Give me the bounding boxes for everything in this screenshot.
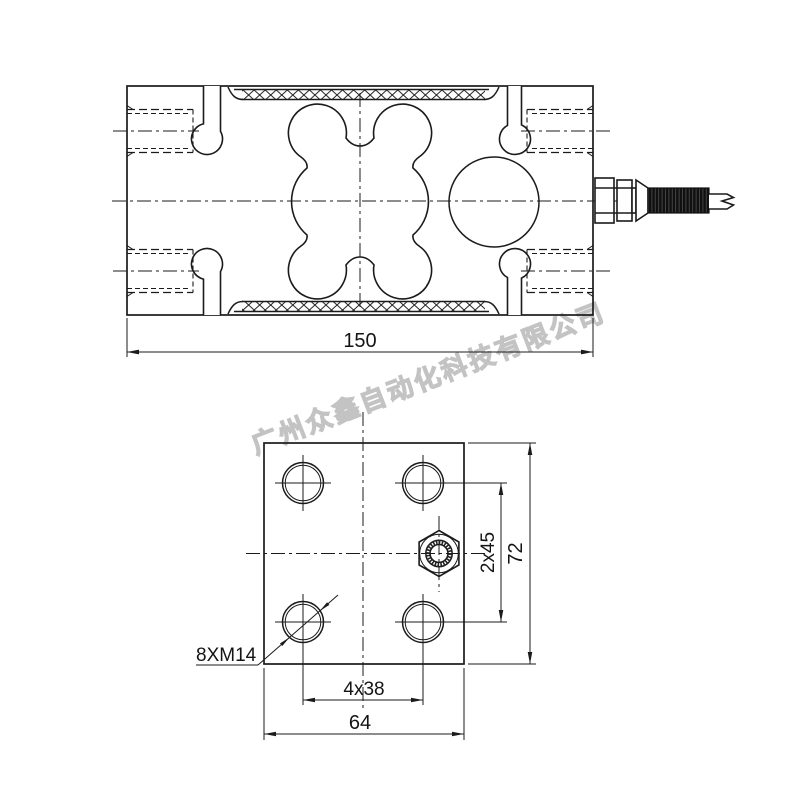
dim-150: 150	[127, 318, 593, 357]
gland-threaded-sleeve	[648, 188, 709, 213]
keyhole-top-left	[191, 86, 222, 155]
top-weld-strip	[228, 87, 499, 100]
bottom-weld-strip	[228, 302, 499, 315]
keyhole-bottom-left	[191, 248, 222, 315]
keyhole-top-right	[499, 86, 530, 154]
keyhole-bottom-right	[499, 249, 530, 315]
dim-150-label: 150	[343, 330, 376, 352]
gland-hex-nut-2	[617, 180, 632, 221]
thread-callout: 8XM14	[196, 595, 338, 666]
gland-bore-circle	[449, 157, 539, 247]
end-view-centerlines	[246, 412, 507, 710]
drawing-canvas: 广州众鑫自动化科技有限公司	[0, 0, 800, 800]
end-view: 2x45 72 4x38	[196, 412, 536, 740]
dim-2x45-label: 2x45	[478, 532, 499, 573]
dim-4x38: 4x38	[303, 679, 423, 702]
dim-2x45: 2x45	[478, 483, 503, 622]
gland-cone	[636, 180, 648, 221]
side-view: 150	[112, 86, 734, 357]
dim-64-label: 64	[349, 712, 371, 734]
thread-callout-label: 8XM14	[196, 645, 257, 666]
dim-4x38-label: 4x38	[343, 679, 384, 700]
cable-with-break	[709, 194, 734, 209]
gland-hex-nut-1	[595, 178, 614, 223]
dim-72-label: 72	[505, 542, 527, 564]
technical-drawing-svg: 150	[0, 0, 800, 800]
